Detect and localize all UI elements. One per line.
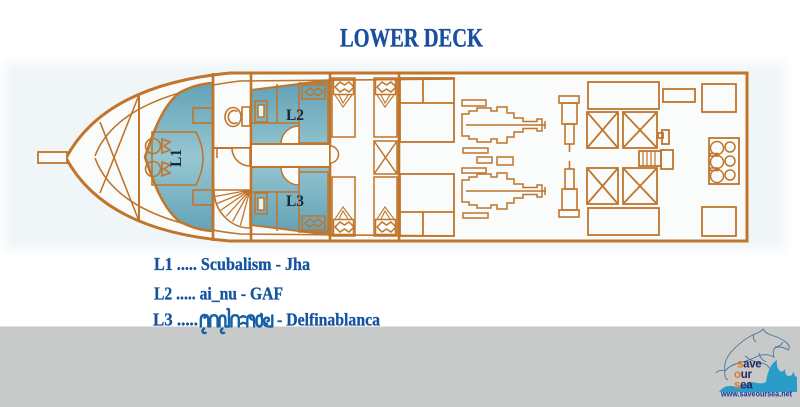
svg-text:L1 ..... Scubalism - Jha: L1 ..... Scubalism - Jha: [154, 254, 310, 274]
svg-text:www.saveoursea.net: www.saveoursea.net: [720, 389, 792, 399]
svg-text:L3 .....: L3 .....: [153, 310, 198, 330]
svg-text:L1: L1: [168, 149, 185, 167]
svg-text:L2 ..... ai_nu - GAF: L2 ..... ai_nu - GAF: [154, 284, 283, 304]
svg-text:LOWER DECK: LOWER DECK: [340, 23, 483, 53]
svg-text:L3: L3: [286, 193, 304, 210]
svg-text:L2: L2: [286, 107, 304, 124]
svg-text:- Delfinablanca: - Delfinablanca: [277, 310, 380, 330]
